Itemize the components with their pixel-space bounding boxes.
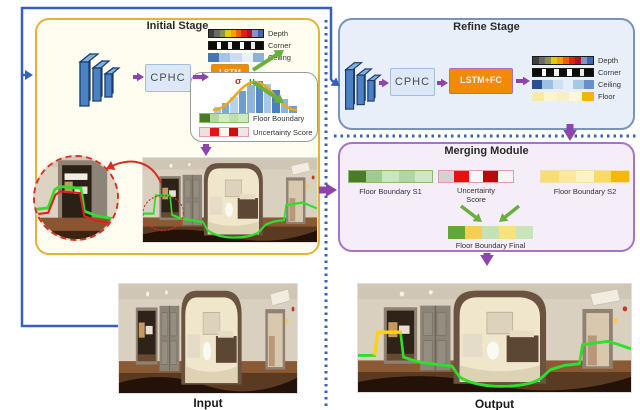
ceiling-row-refine: Ceiling (532, 80, 621, 89)
strip-cell (219, 114, 229, 122)
strip-cell (563, 80, 573, 89)
strip-cell (573, 80, 583, 89)
ceiling-strip-initial (208, 53, 264, 62)
input-caption: Input (118, 396, 298, 410)
strip-cell (469, 171, 484, 182)
strip-cell (582, 92, 594, 101)
depth-row-refine: Depth (532, 56, 618, 65)
corner-strip-initial (208, 41, 264, 50)
panorama-output (357, 283, 632, 393)
strip-cell (542, 80, 552, 89)
depth-row-initial: Depth (208, 29, 288, 38)
strip-cell (544, 92, 556, 101)
strip-cell (546, 69, 555, 76)
strip-cell (587, 57, 593, 64)
strip-cell (465, 226, 482, 239)
corner-label-refine: Corner (598, 68, 621, 77)
floor-boundary-final-strip (448, 226, 533, 239)
input-feed-arrow-refine (331, 80, 336, 83)
strip-cell (210, 128, 220, 136)
corner-label-initial: Corner (268, 41, 291, 50)
strip-cell (611, 171, 629, 182)
gaussian-panel: σ μ Floor Boundary Uncertainty Score (190, 72, 318, 142)
depth-label-refine: Depth (598, 56, 618, 65)
cphc-label-initial: CPHC (150, 72, 185, 84)
figure-canvas: Initial Stage Refine Stage Merging Modul… (0, 0, 640, 410)
strip-cell (230, 53, 241, 62)
strip-cell (219, 128, 229, 136)
strip-cell (200, 128, 210, 136)
ceiling-label-refine: Ceiling (598, 80, 621, 89)
floor-boundary-s2-label: Floor Boundary S2 (540, 188, 630, 197)
strip-cell (366, 171, 383, 182)
lstm-fc-block-refine: LSTM+FC (449, 68, 513, 94)
strip-cell (242, 53, 253, 62)
strip-cell (448, 226, 465, 239)
uncertainty-score-strip (438, 170, 514, 183)
initial-to-merging-arrow (326, 183, 337, 197)
floor-boundary-s1-label: Floor Boundary S1 (348, 188, 433, 197)
strip-cell (532, 80, 542, 89)
strip-cell (559, 69, 568, 76)
strip-cell (572, 69, 581, 76)
uncertainty-row-initial: Uncertainty Score (199, 127, 313, 137)
strip-cell (209, 42, 217, 49)
strip-cell (584, 69, 593, 76)
strip-cell (415, 171, 432, 182)
depth-label-initial: Depth (268, 29, 288, 38)
strip-cell (219, 53, 230, 62)
strip-cell (553, 80, 563, 89)
floor-label-refine: Floor (598, 92, 615, 101)
cphc-block-refine: CPHC (390, 68, 435, 96)
cnn-encoder-refine (342, 56, 392, 114)
output-caption: Output (357, 397, 632, 410)
strip-cell (569, 92, 581, 101)
floor-boundary-strip-initial (199, 113, 249, 123)
uncertainty-strip-initial (199, 127, 249, 137)
strip-cell (210, 114, 220, 122)
floor-boundary-row-initial: Floor Boundary (199, 113, 304, 123)
floor-strip-refine (532, 92, 594, 101)
strip-cell (208, 53, 219, 62)
floor-boundary-s1-strip (348, 170, 433, 183)
panorama-input (118, 283, 298, 394)
floor-boundary-final-label: Floor Boundary Final (448, 242, 533, 251)
strip-cell (253, 53, 264, 62)
strip-cell (258, 30, 263, 37)
strip-cell (498, 171, 513, 182)
strip-cell (557, 92, 569, 101)
strip-cell (594, 171, 612, 182)
strip-cell (482, 226, 499, 239)
ceiling-row-initial: Ceiling (208, 53, 291, 62)
lstm-label-refine: LSTM+FC (460, 76, 502, 85)
strip-cell (483, 171, 498, 182)
zoom-inset-circle (33, 155, 119, 241)
strip-cell (541, 171, 559, 182)
strip-cell (533, 69, 542, 76)
strip-cell (238, 114, 248, 122)
strip-cell (532, 92, 544, 101)
strip-cell (516, 226, 533, 239)
refine-stage-title: Refine Stage (338, 21, 635, 33)
strip-cell (244, 42, 252, 49)
refine-to-merging-arrow (563, 130, 577, 141)
input-feed-arrow-initial (25, 70, 33, 80)
strip-cell (229, 114, 239, 122)
corner-row-initial: Corner (208, 41, 291, 50)
uncertainty-label-initial: Uncertainty Score (253, 128, 313, 137)
strip-cell (439, 171, 454, 182)
strip-cell (229, 128, 239, 136)
cnn-encoder-initial (76, 48, 132, 110)
floor-boundary-s2-strip (540, 170, 630, 183)
corner-strip-refine (532, 68, 594, 77)
uncertainty-score-label-line2: Score (438, 196, 514, 205)
ceiling-strip-refine (532, 80, 594, 89)
cphc-block-initial: CPHC (145, 64, 191, 92)
panorama-initial (142, 157, 318, 243)
strip-cell (232, 42, 240, 49)
merging-to-output-arrow (480, 255, 494, 266)
depth-strip-refine (532, 56, 594, 65)
strip-cell (221, 42, 229, 49)
strip-cell (499, 226, 516, 239)
strip-cell (584, 80, 594, 89)
strip-cell (399, 171, 416, 182)
strip-cell (255, 42, 263, 49)
strip-cell (559, 171, 577, 182)
depth-strip-initial (208, 29, 264, 38)
merging-module-title: Merging Module (338, 145, 635, 157)
ceiling-label-initial: Ceiling (268, 53, 291, 62)
gaussian-curve (213, 79, 297, 113)
floor-row-refine: Floor (532, 92, 615, 101)
strip-cell (454, 171, 469, 182)
strip-cell (200, 114, 210, 122)
corner-row-refine: Corner (532, 68, 621, 77)
strip-cell (349, 171, 366, 182)
strip-cell (576, 171, 594, 182)
strip-cell (238, 128, 248, 136)
cphc-label-refine: CPHC (395, 76, 430, 88)
strip-cell (382, 171, 399, 182)
floor-boundary-label-initial: Floor Boundary (253, 114, 304, 123)
